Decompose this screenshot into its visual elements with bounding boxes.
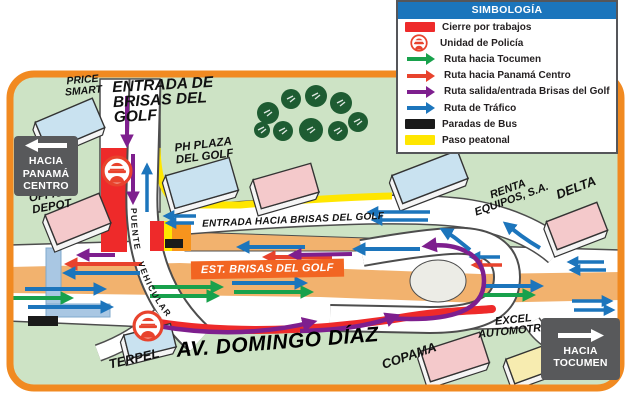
legend-item-bus: Paradas de Bus <box>398 116 616 132</box>
purple-arrow-icon <box>407 90 427 94</box>
crosswalk-swatch <box>405 135 435 145</box>
green-arrow-icon <box>407 57 427 61</box>
legend-label: Paso peatonal <box>442 135 510 146</box>
legend-item-brisas: Ruta salida/entrada Brisas del Golf <box>398 84 616 100</box>
est-brisas-badge: EST. BRISAS DEL GOLF <box>191 259 344 280</box>
route-arrow <box>292 254 352 255</box>
sign-hacia-tocumen: HACIA TOCUMEN <box>541 318 620 380</box>
sign-west-text: HACIA PANAMÁ CENTRO <box>23 155 70 192</box>
legend-label: Ruta salida/entrada Brisas del Golf <box>444 86 610 97</box>
police-unit-icon <box>103 157 131 185</box>
closure-junction-block <box>150 221 164 251</box>
legend-item-trafico: Ruta de Tráfico <box>398 100 616 116</box>
legend-label: Paradas de Bus <box>442 119 517 130</box>
legend-label: Ruta hacia Tocumen <box>444 54 541 65</box>
bus-stop-left <box>28 316 58 326</box>
legend-item-closure: Cierre por trabajos <box>398 19 616 35</box>
left-arrow-icon <box>25 139 67 152</box>
right-arrow-icon <box>558 329 604 342</box>
pedestrian-bridge-vertical <box>46 248 61 310</box>
legend-label: Cierre por trabajos <box>442 22 531 33</box>
sign-hacia-panama-centro: HACIA PANAMÁ CENTRO <box>14 136 78 196</box>
legend-item-peatonal: Paso peatonal <box>398 132 616 148</box>
bus-stop-junction <box>165 239 183 248</box>
sign-east-text: HACIA TOCUMEN <box>553 345 607 370</box>
bus-stop-swatch <box>405 119 435 129</box>
legend-item-panama: Ruta hacia Panamá Centro <box>398 68 616 84</box>
legend-label: Ruta de Tráfico <box>444 103 516 114</box>
traffic-map: PUENTE VEHICULAR PRICE SMART ENTRADA DE … <box>0 0 630 400</box>
closure-swatch <box>405 22 435 32</box>
red-arrow-icon <box>407 74 427 78</box>
legend-item-police: Unidad de Policía <box>398 35 616 51</box>
legend: SIMBOLOGÍA Cierre por trabajos Unidad de… <box>396 0 618 154</box>
label-price-smart: PRICE SMART <box>55 73 111 99</box>
police-icon <box>410 34 428 52</box>
blue-arrow-icon <box>407 106 427 110</box>
legend-label: Unidad de Policía <box>440 38 523 49</box>
loop-island <box>410 260 466 302</box>
label-entrada-brisas: ENTRADA DE BRISAS DEL GOLF <box>112 74 234 126</box>
legend-label: Ruta hacia Panamá Centro <box>444 70 571 81</box>
legend-title: SIMBOLOGÍA <box>398 2 616 19</box>
police-unit-icon <box>134 312 162 340</box>
legend-item-tocumen: Ruta hacia Tocumen <box>398 51 616 67</box>
